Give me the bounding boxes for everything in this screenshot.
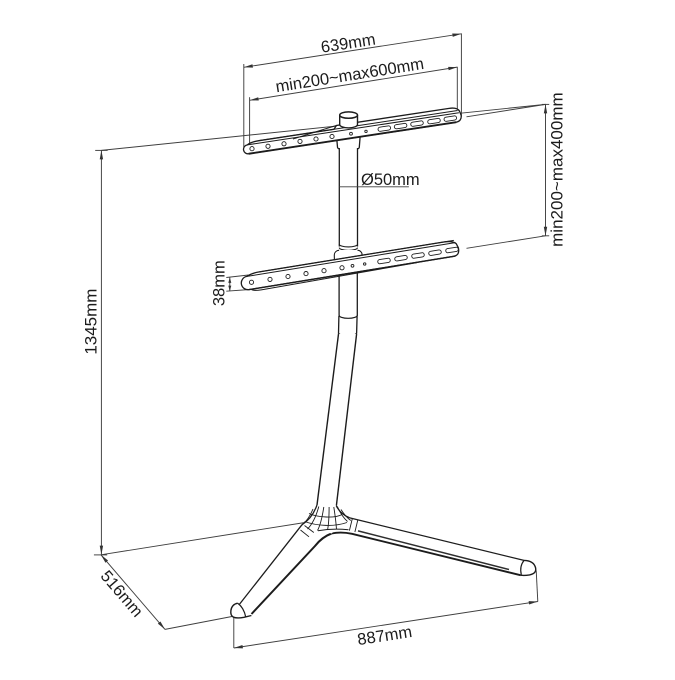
svg-text:Ø50mm: Ø50mm [361,171,420,189]
svg-text:min200~max400mm: min200~max400mm [548,92,567,247]
svg-text:1345mm: 1345mm [82,289,101,355]
svg-text:38mm: 38mm [211,260,229,306]
